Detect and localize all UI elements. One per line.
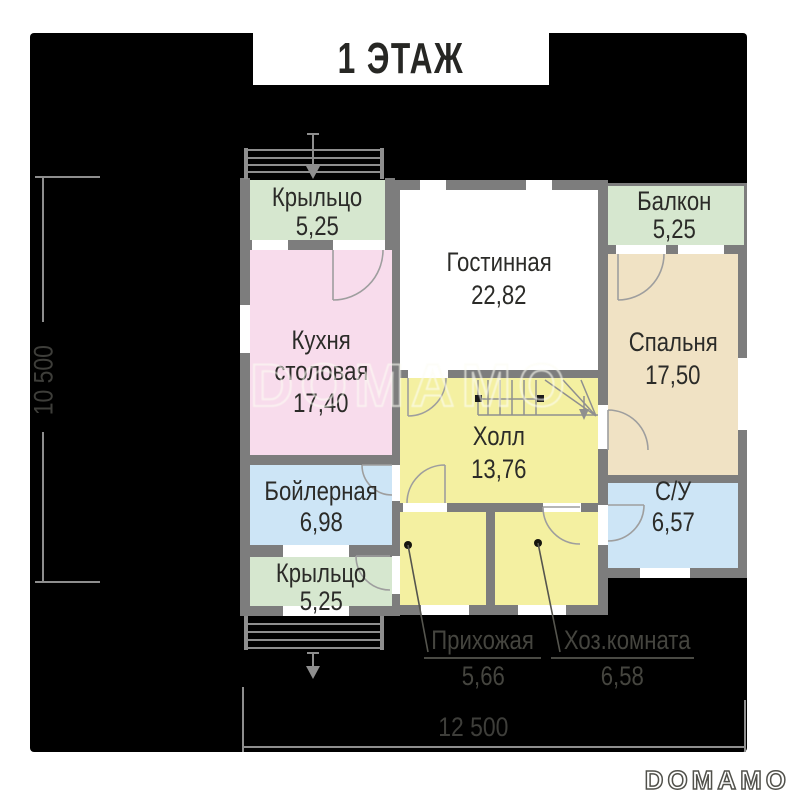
- label-living-name: Гостинная: [400, 248, 598, 277]
- label-hall-area: 13,76: [400, 455, 598, 484]
- label-hall-name: Холл: [400, 422, 598, 451]
- dimension-height: 10 500: [29, 331, 60, 431]
- exit-arrow-bottom-icon: [307, 653, 319, 668]
- stairs-bottom: [244, 616, 384, 679]
- label-porch-top-name: Крыльцо: [250, 183, 385, 212]
- label-porch-top-area: 5,25: [250, 212, 385, 241]
- label-utility-name: Хоз.комната: [550, 626, 695, 655]
- label-boiler-area: 6,98: [250, 508, 392, 537]
- label-entry-name: Прихожая: [413, 626, 553, 655]
- label-wc-area: 6,57: [608, 508, 738, 537]
- label-bedroom-name: Спальня: [608, 328, 738, 357]
- label-balcony-name: Балкон: [604, 187, 744, 216]
- label-utility-area: 6,58: [550, 662, 695, 691]
- label-living-area: 22,82: [400, 281, 598, 310]
- label-bedroom-area: 17,50: [608, 361, 738, 390]
- watermark-center: DOMAMO: [218, 348, 604, 424]
- room-utility-fill: [495, 512, 598, 605]
- domamo-logo: DOMAMO: [630, 764, 790, 796]
- stairs-top: [244, 134, 384, 179]
- room-entry-fill: [400, 512, 486, 605]
- label-porch-bottom-area: 5,25: [250, 587, 392, 616]
- dimension-width: 12 500: [373, 712, 573, 743]
- label-boiler-name: Бойлерная: [250, 477, 392, 506]
- label-porch-bottom-name: Крыльцо: [250, 559, 392, 588]
- label-entry-area: 5,66: [413, 662, 553, 691]
- label-wc-name: С/У: [608, 477, 738, 506]
- floor-plan-page: 1 ЭТАЖ: [0, 0, 800, 800]
- label-balcony-area: 5,25: [604, 215, 744, 244]
